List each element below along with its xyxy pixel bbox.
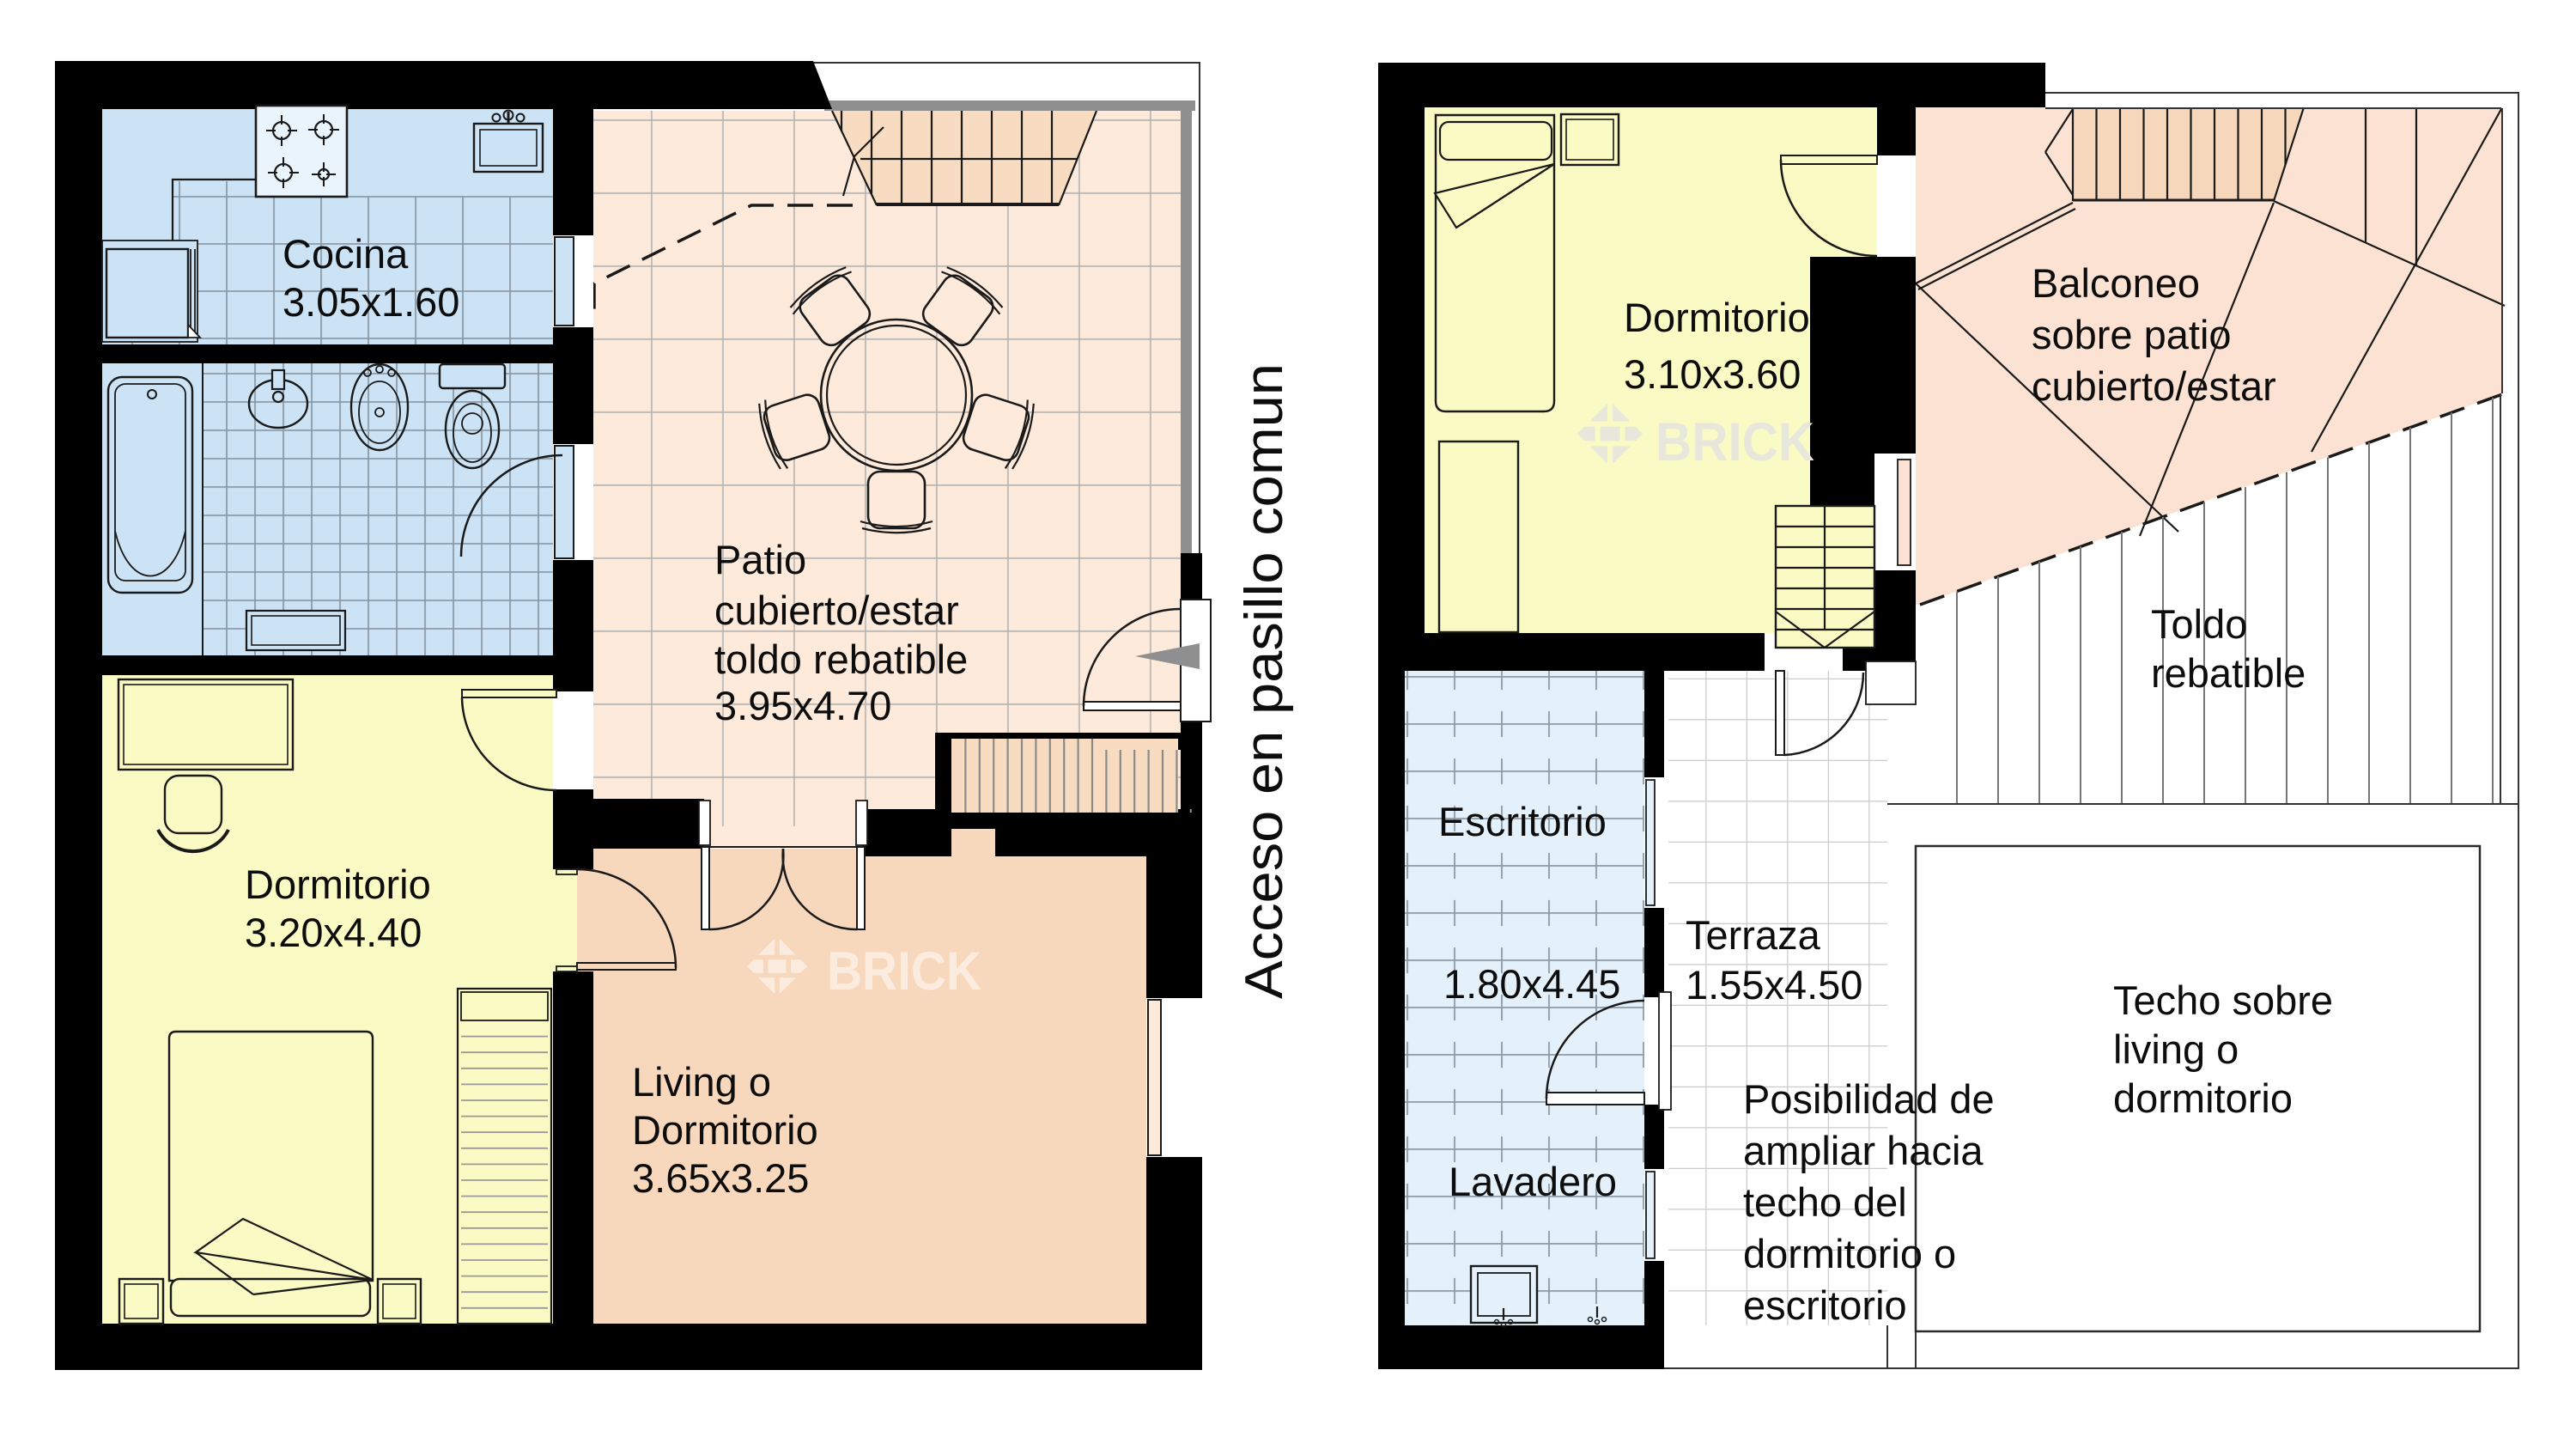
svg-text:cubierto/estar: cubierto/estar bbox=[2032, 363, 2276, 409]
svg-text:Dormitorio: Dormitorio bbox=[245, 862, 431, 907]
svg-text:escritorio: escritorio bbox=[1743, 1282, 1907, 1328]
svg-text:rebatible: rebatible bbox=[2151, 650, 2306, 696]
svg-text:Toldo: Toldo bbox=[2151, 601, 2247, 647]
svg-text:3.05x1.60: 3.05x1.60 bbox=[283, 279, 459, 325]
svg-text:Posibilidad de: Posibilidad de bbox=[1743, 1076, 1995, 1122]
svg-text:toldo rebatible: toldo rebatible bbox=[714, 636, 968, 682]
svg-text:Balconeo: Balconeo bbox=[2032, 260, 2200, 306]
svg-text:Dormitorio: Dormitorio bbox=[1624, 295, 1810, 340]
svg-text:3.20x4.40: 3.20x4.40 bbox=[245, 910, 422, 955]
svg-text:techo del: techo del bbox=[1743, 1179, 1907, 1225]
svg-text:1.80x4.45: 1.80x4.45 bbox=[1443, 961, 1620, 1007]
svg-text:BRICK: BRICK bbox=[827, 941, 981, 1002]
svg-text:cubierto/estar: cubierto/estar bbox=[714, 588, 959, 633]
svg-text:Acceso en pasillo comun: Acceso en pasillo comun bbox=[1235, 363, 1294, 999]
svg-text:dormitorio: dormitorio bbox=[2113, 1075, 2293, 1121]
svg-text:1.55x4.50: 1.55x4.50 bbox=[1686, 962, 1862, 1008]
svg-text:dormitorio o: dormitorio o bbox=[1743, 1231, 1956, 1276]
svg-text:Patio: Patio bbox=[714, 537, 806, 582]
svg-text:living o: living o bbox=[2113, 1026, 2239, 1072]
svg-text:BRICK: BRICK bbox=[1656, 412, 1814, 472]
svg-text:Living o: Living o bbox=[632, 1059, 771, 1105]
svg-text:sobre patio: sobre patio bbox=[2032, 312, 2232, 357]
svg-text:3.65x3.25: 3.65x3.25 bbox=[632, 1155, 809, 1201]
svg-text:3.95x4.70: 3.95x4.70 bbox=[714, 683, 891, 728]
svg-text:Escritorio: Escritorio bbox=[1438, 799, 1607, 844]
svg-text:ampliar hacia: ampliar hacia bbox=[1743, 1128, 1984, 1173]
svg-text:Lavadero: Lavadero bbox=[1449, 1159, 1617, 1204]
svg-text:Cocina: Cocina bbox=[283, 231, 409, 277]
svg-text:Techo sobre: Techo sobre bbox=[2113, 977, 2333, 1023]
svg-text:Dormitorio: Dormitorio bbox=[632, 1107, 818, 1153]
svg-text:Terraza: Terraza bbox=[1686, 912, 1821, 958]
svg-text:3.10x3.60: 3.10x3.60 bbox=[1624, 351, 1801, 397]
